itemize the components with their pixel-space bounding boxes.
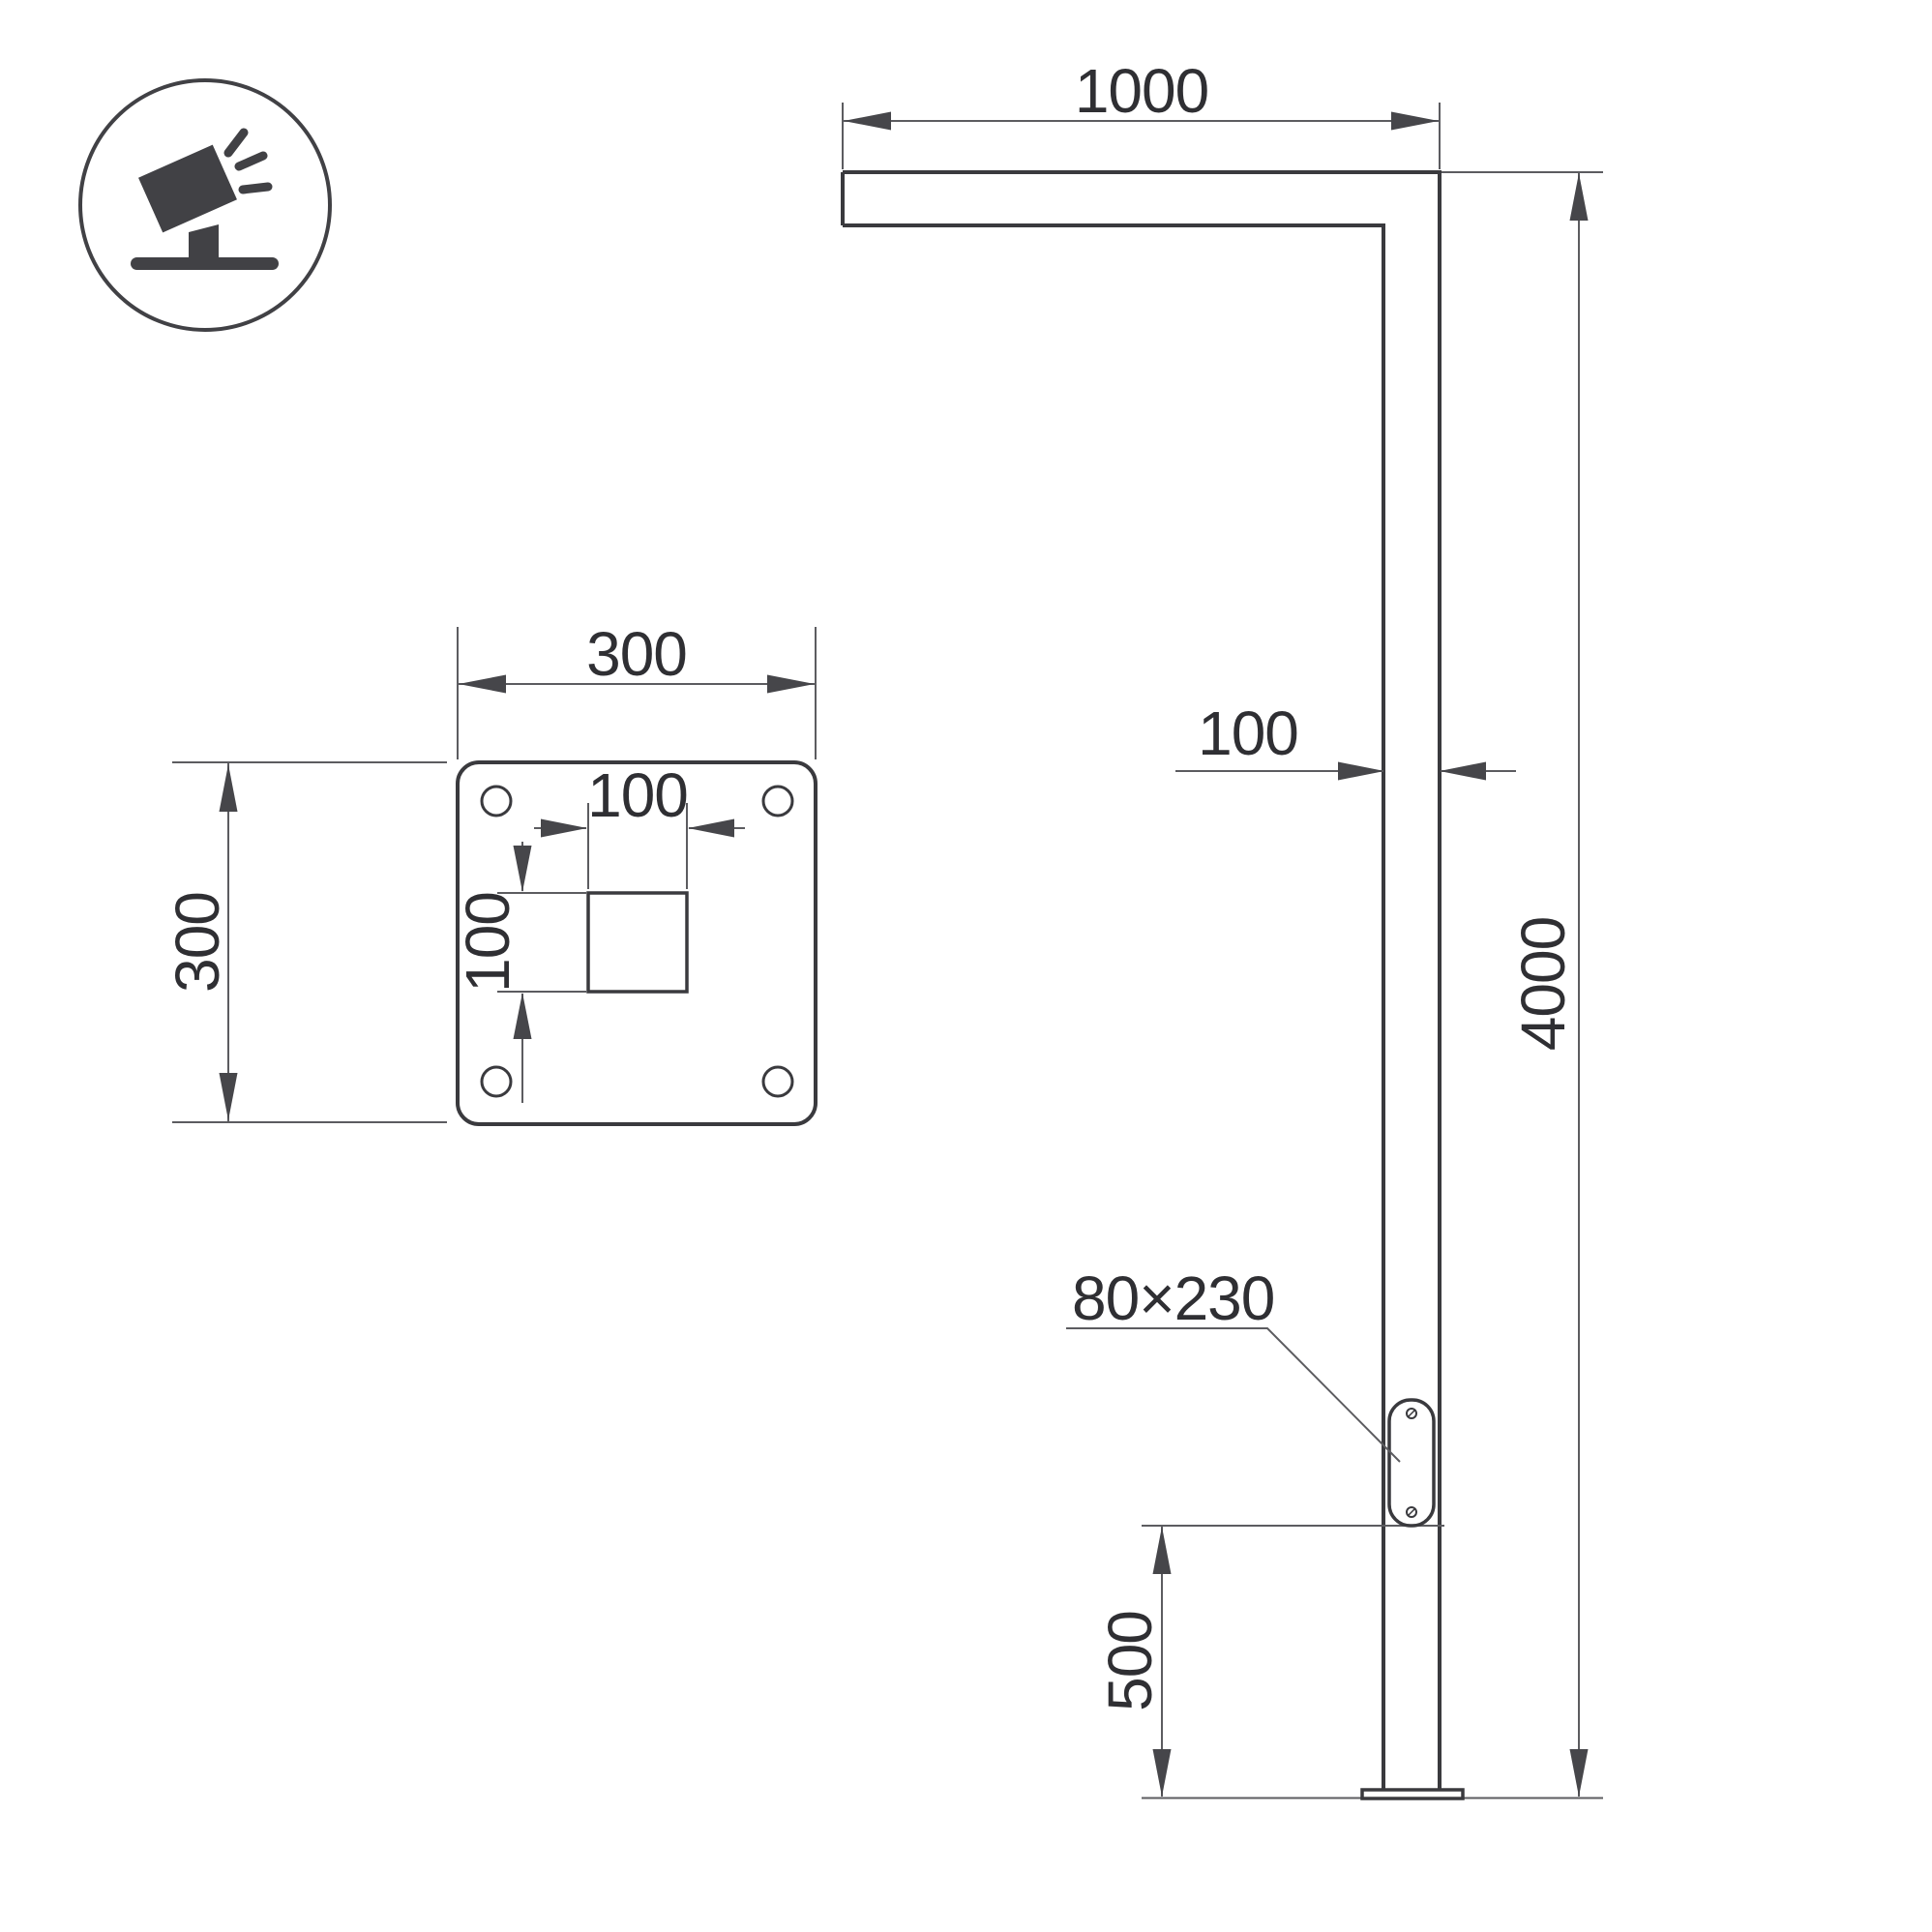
light-ray-icon: [228, 133, 244, 153]
dim-plate-width-label: 300: [586, 619, 687, 689]
arrowhead: [844, 112, 891, 131]
arrowhead: [1570, 173, 1589, 221]
dim-plate-width: 300: [458, 619, 816, 759]
door-size-label: 80×230: [1072, 1263, 1274, 1333]
arrowhead: [1440, 762, 1486, 781]
dim-cutout-height-label: 100: [453, 892, 522, 993]
bolt-hole: [482, 1067, 511, 1096]
dim-cutout-width-label: 100: [587, 760, 688, 830]
bolt-hole: [763, 787, 792, 816]
arrowhead: [459, 675, 506, 694]
dim-arm-length: 1000: [843, 56, 1440, 169]
light-ray-icon: [243, 187, 268, 190]
dim-pole-height-label: 4000: [1508, 917, 1578, 1051]
dim-arm-length-label: 1000: [1075, 56, 1208, 126]
arrowhead: [1153, 1749, 1172, 1797]
pole-inner-outline: [843, 225, 1383, 1790]
arrowhead: [767, 675, 815, 694]
dim-pole-height: 4000: [1442, 172, 1603, 1797]
arrowhead: [220, 764, 238, 812]
base-plate-front-view: [1362, 1790, 1463, 1798]
dim-plate-height-label: 300: [163, 892, 232, 993]
bolt-hole: [482, 787, 511, 816]
arrowhead: [1570, 1749, 1589, 1797]
leader-line: [1066, 1328, 1400, 1462]
dim-pole-width: 100: [1175, 698, 1516, 781]
floodlight-base-icon: [131, 257, 279, 270]
pole-side-view: 1000 100 4000 500: [843, 56, 1603, 1798]
floodlight-icon: [80, 80, 330, 330]
technical-drawing: 300 300 100 100: [0, 0, 1932, 1932]
dim-door-height: 500: [1095, 1526, 1444, 1797]
arrowhead: [220, 1073, 238, 1120]
base-plate-top-view: 300 300 100 100: [163, 619, 816, 1124]
service-door-group: 80×230: [1066, 1263, 1434, 1526]
light-ray-icon: [239, 156, 263, 166]
bolt-hole: [763, 1067, 792, 1096]
dim-pole-width-label: 100: [1198, 698, 1298, 768]
pole-outer-outline: [843, 172, 1440, 1790]
arrowhead: [1338, 762, 1384, 781]
dim-door-height-label: 500: [1095, 1611, 1165, 1711]
dim-plate-height: 300: [163, 762, 447, 1122]
square-cutout: [588, 893, 687, 992]
arrowhead: [1153, 1527, 1172, 1574]
floodlight-head-icon: [138, 145, 237, 233]
arrowhead: [1391, 112, 1439, 131]
